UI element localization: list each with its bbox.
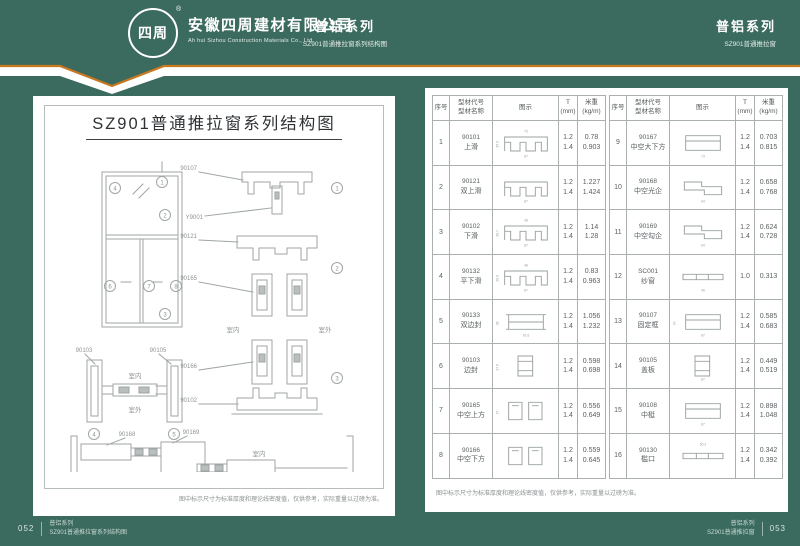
cell-seq: 14 — [610, 344, 627, 389]
dimension-label: 37.5 — [495, 364, 499, 371]
series-title: 普铝系列 — [716, 16, 776, 35]
profile-drawing: 27 — [494, 390, 558, 432]
cell-code-name: 90169中空勾企 — [627, 210, 670, 255]
company-logo-icon: 四周 — [128, 8, 178, 58]
profile-drawing: 73 — [671, 122, 735, 164]
series-title-right: 普铝系列 SZ901普通推拉窗 — [716, 16, 776, 48]
cell-diagram: 37.5 — [493, 344, 559, 389]
profile-label-y9001: Y9001 — [186, 215, 204, 221]
col-header-diagram: 图示 — [493, 96, 559, 121]
cell-code-name: 90103边封 — [450, 344, 493, 389]
cell-thickness: 1.21.4 — [559, 389, 578, 434]
cell-weight: 0.5560.649 — [578, 389, 606, 434]
profile-drawing: 46 — [671, 256, 735, 298]
right-page-note: 图中标示尺寸为标准厚度和理论线密度值，仅供参考，实际重量以过磅为准。 — [436, 488, 640, 497]
col-header-seq: 序号 — [610, 96, 627, 121]
cell-weight: 0.780.903 — [578, 121, 606, 166]
cell-diagram: 46 — [670, 255, 736, 300]
callout-4: 4 — [113, 187, 117, 193]
profile-drawing: 8730 — [671, 301, 735, 343]
profile-label-90169: 90169 — [183, 430, 200, 436]
col-header-code: 型材代号型材名称 — [627, 96, 670, 121]
cell-seq: 12 — [610, 255, 627, 300]
profile-drawing: 50.2 — [671, 435, 735, 477]
page-number: 053 — [770, 523, 786, 535]
cell-seq: 13 — [610, 300, 627, 345]
profile-drawing: 738735.5 — [494, 122, 558, 164]
right-page: 序号型材代号型材名称图示T(mm)米重(kg/m)190101上滑738735.… — [425, 88, 788, 512]
cell-code-name: 90105盖板 — [627, 344, 670, 389]
cell-seq: 1 — [433, 121, 450, 166]
footer-divider — [762, 522, 763, 536]
cell-seq: 7 — [433, 389, 450, 434]
cell-weight: 1.0561.232 — [578, 300, 606, 345]
callout-1: 1 — [160, 181, 164, 187]
cell-seq: 2 — [433, 166, 450, 211]
dimension-label: 73 — [701, 155, 705, 159]
outdoor-label: 室外 — [129, 405, 143, 414]
cell-code-name: 90167中空大下方 — [627, 121, 670, 166]
left-page: SZ901普通推拉窗系列结构图 — [33, 96, 395, 516]
profile-drawing: 87 — [671, 345, 735, 387]
dimension-label: 91.6 — [522, 333, 529, 337]
cell-thickness: 1.21.4 — [559, 166, 578, 211]
profile-drawing: 87 — [671, 390, 735, 432]
cell-diagram: 64 — [670, 210, 736, 255]
logo-mark: 四周 — [138, 23, 168, 43]
profile-drawing: 91.636 — [494, 301, 558, 343]
cell-code-name: 90132平下滑 — [450, 255, 493, 300]
cell-seq: 10 — [610, 166, 627, 211]
cell-seq: 3 — [433, 210, 450, 255]
profile-drawing: 488736.7 — [494, 211, 558, 253]
footer-divider — [41, 522, 42, 536]
cell-weight: 0.4490.519 — [755, 344, 783, 389]
cell-diagram: 8730 — [670, 300, 736, 345]
dimension-label: 87 — [701, 378, 705, 382]
profile-drawing: 64 — [671, 167, 735, 209]
profile-label-90102: 90102 — [180, 398, 197, 404]
cell-code-name: 90108中梃 — [627, 389, 670, 434]
cell-seq: 15 — [610, 389, 627, 434]
callout-4: 4 — [92, 433, 96, 439]
cell-thickness: 1.21.4 — [736, 210, 755, 255]
cell-code-name: 90107固定框 — [627, 300, 670, 345]
cell-code-name: 90133双边封 — [450, 300, 493, 345]
dimension-label: 46 — [701, 289, 705, 293]
profile-label-90166: 90166 — [180, 364, 197, 370]
col-header-diagram: 图示 — [670, 96, 736, 121]
cell-thickness: 1.21.4 — [736, 300, 755, 345]
cell-diagram: 73 — [670, 121, 736, 166]
profile-table-left-half: 序号型材代号型材名称图示T(mm)米重(kg/m)190101上滑738735.… — [432, 95, 606, 479]
dimension-label: 35.5 — [495, 141, 499, 148]
series-title-center: 普铝系列 SZ901普通推拉窗系列结构图 — [255, 16, 435, 48]
cell-code-name: 90121双上滑 — [450, 166, 493, 211]
page-number: 052 — [18, 523, 34, 535]
cell-weight: 0.830.963 — [578, 255, 606, 300]
cell-code-name: 90101上滑 — [450, 121, 493, 166]
cell-seq: 9 — [610, 121, 627, 166]
cell-seq: 11 — [610, 210, 627, 255]
profile-label-90121: 90121 — [180, 234, 197, 240]
cell-weight: 0.5590.645 — [578, 434, 606, 479]
callout-2: 2 — [163, 214, 167, 220]
cell-seq: 5 — [433, 300, 450, 345]
series-title: 普铝系列 — [255, 16, 435, 35]
cell-thickness: 1.21.4 — [736, 389, 755, 434]
cell-code-name: 90130槛口 — [627, 434, 670, 479]
profile-label-90165: 90165 — [180, 276, 197, 282]
cell-diagram: 87 — [493, 166, 559, 211]
cell-weight: 0.6580.768 — [755, 166, 783, 211]
profile-drawing: 87 — [494, 167, 558, 209]
footer-left: 052 普铝系列 SZ901普通推拉窗系列结构图 — [18, 520, 127, 538]
cell-thickness: 1.0 — [736, 255, 755, 300]
dimension-label: 64 — [701, 244, 705, 248]
dimension-label: 87 — [701, 333, 705, 337]
cell-diagram: 64 — [670, 166, 736, 211]
profile-label-90168: 90168 — [119, 432, 136, 438]
cell-weight: 1.2271.424 — [578, 166, 606, 211]
cell-diagram: 27 — [493, 389, 559, 434]
cell-code-name: SC001纱窗 — [627, 255, 670, 300]
cell-diagram: 488736.7 — [493, 210, 559, 255]
profile-drawing — [494, 435, 558, 477]
dimension-label: 36 — [495, 321, 499, 325]
cell-weight: 0.7030.815 — [755, 121, 783, 166]
col-header-thickness: T(mm) — [559, 96, 578, 121]
footer-right: 普铝系列 SZ901普通推拉窗 053 — [707, 520, 786, 538]
dimension-label: 50.2 — [699, 442, 706, 446]
cell-diagram: 488726.5 — [493, 255, 559, 300]
cell-code-name: 90168中空光企 — [627, 166, 670, 211]
cell-thickness: 1.21.4 — [736, 121, 755, 166]
dimension-label: 87 — [524, 244, 528, 248]
col-header-seq: 序号 — [433, 96, 450, 121]
cell-diagram — [493, 434, 559, 479]
dimension-label: 30 — [672, 321, 676, 325]
profile-table: 序号型材代号型材名称图示T(mm)米重(kg/m)190101上滑738735.… — [432, 95, 783, 479]
cell-weight: 0.5850.683 — [755, 300, 783, 345]
cell-code-name: 90165中空上方 — [450, 389, 493, 434]
page-header: 四周 ® 安徽四周建材有限公司 Ah hui Sizhou Constructi… — [0, 0, 800, 66]
dimension-label: 48 — [524, 263, 528, 267]
cell-thickness: 1.21.4 — [559, 121, 578, 166]
structure-diagram: 4 1 2 6 7 8 3 90107 Y9001 90121 90165 90… — [47, 142, 381, 472]
footer-series: 普铝系列 — [49, 520, 127, 529]
indoor-label: 室内 — [253, 449, 266, 458]
callout-1: 1 — [335, 187, 339, 193]
dimension-label: 48 — [524, 219, 528, 223]
indoor-label: 室内 — [129, 371, 142, 380]
series-subtitle: SZ901普通推拉窗系列结构图 — [255, 38, 435, 48]
left-page-note: 图中标示尺寸为标准厚度和理论线密度值，仅供参考，实际重量以过磅为准。 — [179, 494, 383, 503]
cell-diagram: 91.636 — [493, 300, 559, 345]
dimension-label: 87 — [524, 199, 528, 203]
cell-thickness: 1.21.4 — [736, 434, 755, 479]
profile-drawing: 37.5 — [494, 345, 558, 387]
series-subtitle: SZ901普通推拉窗 — [716, 38, 776, 48]
col-header-weight: 米重(kg/m) — [578, 96, 606, 121]
col-header-weight: 米重(kg/m) — [755, 96, 783, 121]
cell-weight: 0.5980.698 — [578, 344, 606, 389]
cell-seq: 8 — [433, 434, 450, 479]
cell-weight: 1.141.28 — [578, 210, 606, 255]
dimension-label: 26.5 — [495, 275, 499, 282]
cell-weight: 0.3420.392 — [755, 434, 783, 479]
dimension-label: 36.7 — [495, 230, 499, 237]
col-header-thickness: T(mm) — [736, 96, 755, 121]
profile-label-90105: 90105 — [150, 348, 167, 354]
cell-weight: 0.6240.728 — [755, 210, 783, 255]
profile-label-90103: 90103 — [76, 348, 93, 354]
cell-seq: 4 — [433, 255, 450, 300]
footer-series-sub: SZ901普通推拉窗系列结构图 — [49, 529, 127, 538]
dimension-label: 87 — [524, 155, 528, 159]
cell-code-name: 90166中空下方 — [450, 434, 493, 479]
cell-thickness: 1.21.4 — [559, 210, 578, 255]
catalog-spread: 四周 ® 安徽四周建材有限公司 Ah hui Sizhou Constructi… — [0, 0, 800, 546]
profile-label-90107: 90107 — [180, 166, 197, 172]
profile-table-right-half: 序号型材代号型材名称图示T(mm)米重(kg/m)990167中空大下方731.… — [609, 95, 783, 479]
profile-drawing: 64 — [671, 211, 735, 253]
dimension-label: 87 — [524, 289, 528, 293]
cell-diagram: 738735.5 — [493, 121, 559, 166]
cell-diagram: 87 — [670, 389, 736, 434]
cell-weight: 0.8981.048 — [755, 389, 783, 434]
cell-thickness: 1.21.4 — [736, 344, 755, 389]
callout-2: 2 — [335, 267, 339, 273]
footer-series-sub: SZ901普通推拉窗 — [707, 529, 755, 538]
dimension-label: 87 — [701, 423, 705, 427]
cell-seq: 6 — [433, 344, 450, 389]
outdoor-label: 室外 — [319, 325, 333, 334]
callout-3: 3 — [163, 313, 167, 319]
cell-thickness: 1.21.4 — [559, 344, 578, 389]
cell-seq: 16 — [610, 434, 627, 479]
cell-thickness: 1.21.4 — [559, 300, 578, 345]
profile-drawing: 488726.5 — [494, 256, 558, 298]
cell-diagram: 87 — [670, 344, 736, 389]
cell-thickness: 1.21.4 — [559, 255, 578, 300]
callout-7: 7 — [147, 285, 151, 291]
callout-3: 3 — [335, 377, 339, 383]
callout-5: 5 — [172, 433, 176, 439]
cell-thickness: 1.21.4 — [736, 166, 755, 211]
registered-mark: ® — [176, 6, 181, 13]
footer-series: 普铝系列 — [707, 520, 755, 529]
indoor-label: 室内 — [227, 325, 240, 334]
callout-6: 6 — [108, 285, 112, 291]
dimension-label: 64 — [701, 199, 705, 203]
cell-weight: 0.313 — [755, 255, 783, 300]
col-header-code: 型材代号型材名称 — [450, 96, 493, 121]
cell-diagram: 50.2 — [670, 434, 736, 479]
dimension-label: 73 — [524, 129, 528, 133]
dimension-label: 27 — [495, 410, 499, 414]
cell-code-name: 90102下滑 — [450, 210, 493, 255]
cell-thickness: 1.21.4 — [559, 434, 578, 479]
